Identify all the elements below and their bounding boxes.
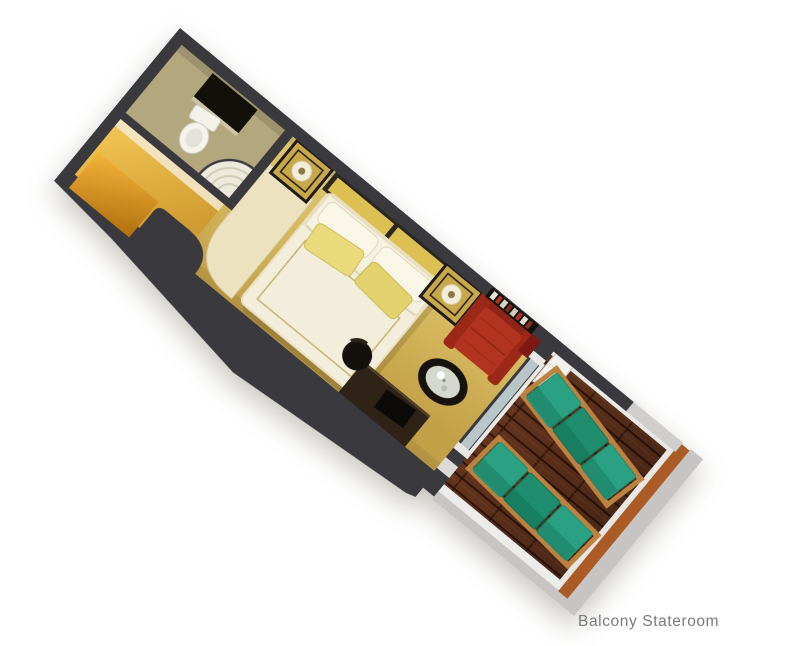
stateroom-figure: Balcony Stateroom	[0, 0, 800, 646]
caption: Balcony Stateroom	[578, 613, 719, 630]
stateroom-render-image: Balcony Stateroom	[0, 0, 800, 646]
